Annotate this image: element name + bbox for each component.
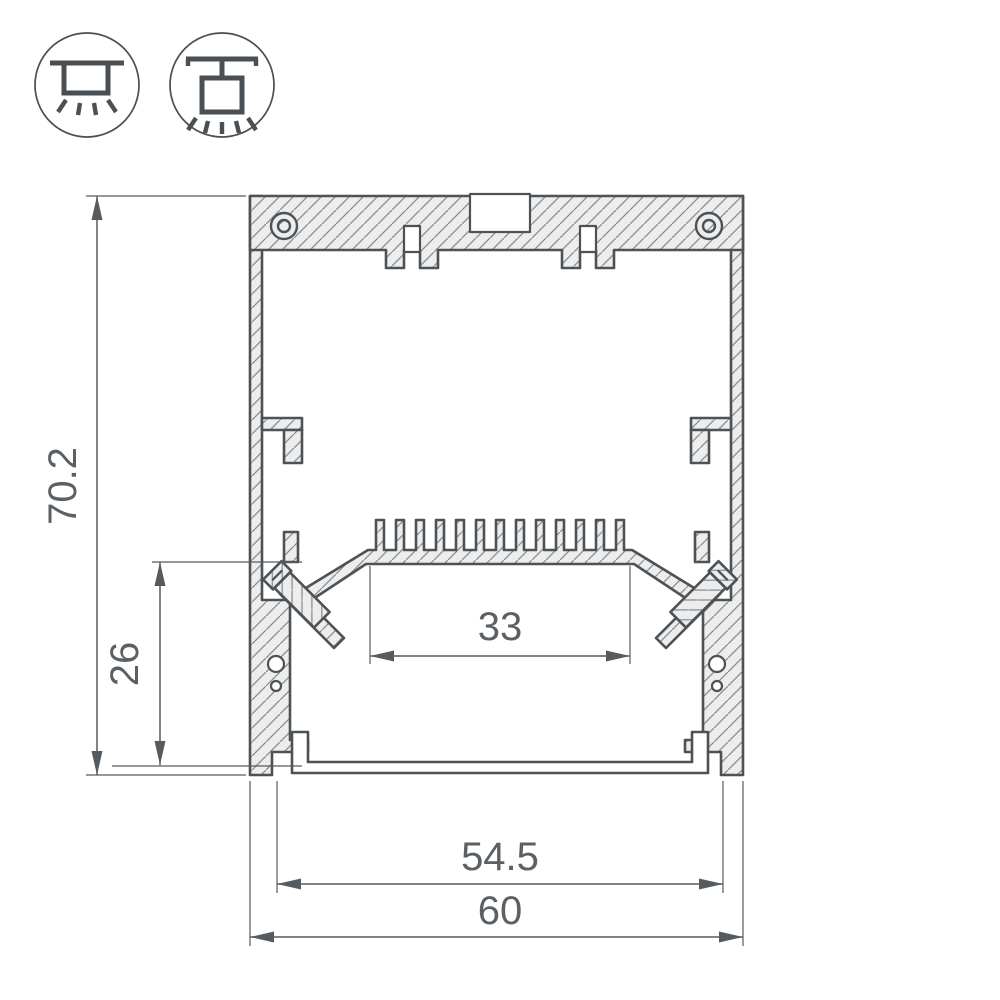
left-ledge-tab: [284, 532, 298, 562]
dimension-label-60: 60: [478, 889, 523, 933]
arrow-down-icon: [155, 741, 166, 765]
arrow-left-icon: [277, 879, 301, 890]
left-hook-arm: [262, 418, 302, 430]
profile-cross-section: [250, 194, 743, 775]
dimension-label-26: 26: [103, 642, 147, 687]
arrow-up-icon: [92, 196, 103, 220]
pendant-mount-luminaire-icon: [170, 33, 274, 137]
arrow-right-icon: [719, 932, 743, 943]
right-hook-arm: [691, 418, 731, 430]
arrow-left-icon: [250, 932, 274, 943]
light-rays: [58, 100, 116, 115]
left-hook-leg: [284, 430, 302, 463]
profile-drawing: 70.2 26 33 54.5 60: [0, 0, 1000, 1000]
dimension-overall-height: 70.2: [41, 196, 246, 775]
right-ledge-tab: [695, 532, 709, 562]
diffuser-plate: [292, 732, 708, 773]
heatsink-fin-plate: [296, 520, 704, 605]
technical-drawing-page: 70.2 26 33 54.5 60: [0, 0, 1000, 1000]
dimension-led-platform-width: 33: [370, 566, 630, 664]
right-hook-leg: [691, 430, 709, 463]
surface-mount-luminaire-icon: [35, 33, 139, 137]
arrow-right-icon: [606, 651, 630, 662]
dimension-label-54-5: 54.5: [461, 835, 539, 879]
dimension-label-70-2: 70.2: [41, 447, 85, 525]
arrow-right-icon: [699, 879, 723, 890]
left-t-slot: [404, 226, 420, 252]
dimension-label-33: 33: [478, 605, 523, 649]
right-t-slot: [580, 226, 596, 252]
dimension-inner-width: 54.5: [277, 781, 723, 893]
arrow-up-icon: [155, 562, 166, 586]
arrow-down-icon: [92, 751, 103, 775]
top-channel-opening: [470, 194, 530, 232]
arrow-left-icon: [370, 651, 394, 662]
